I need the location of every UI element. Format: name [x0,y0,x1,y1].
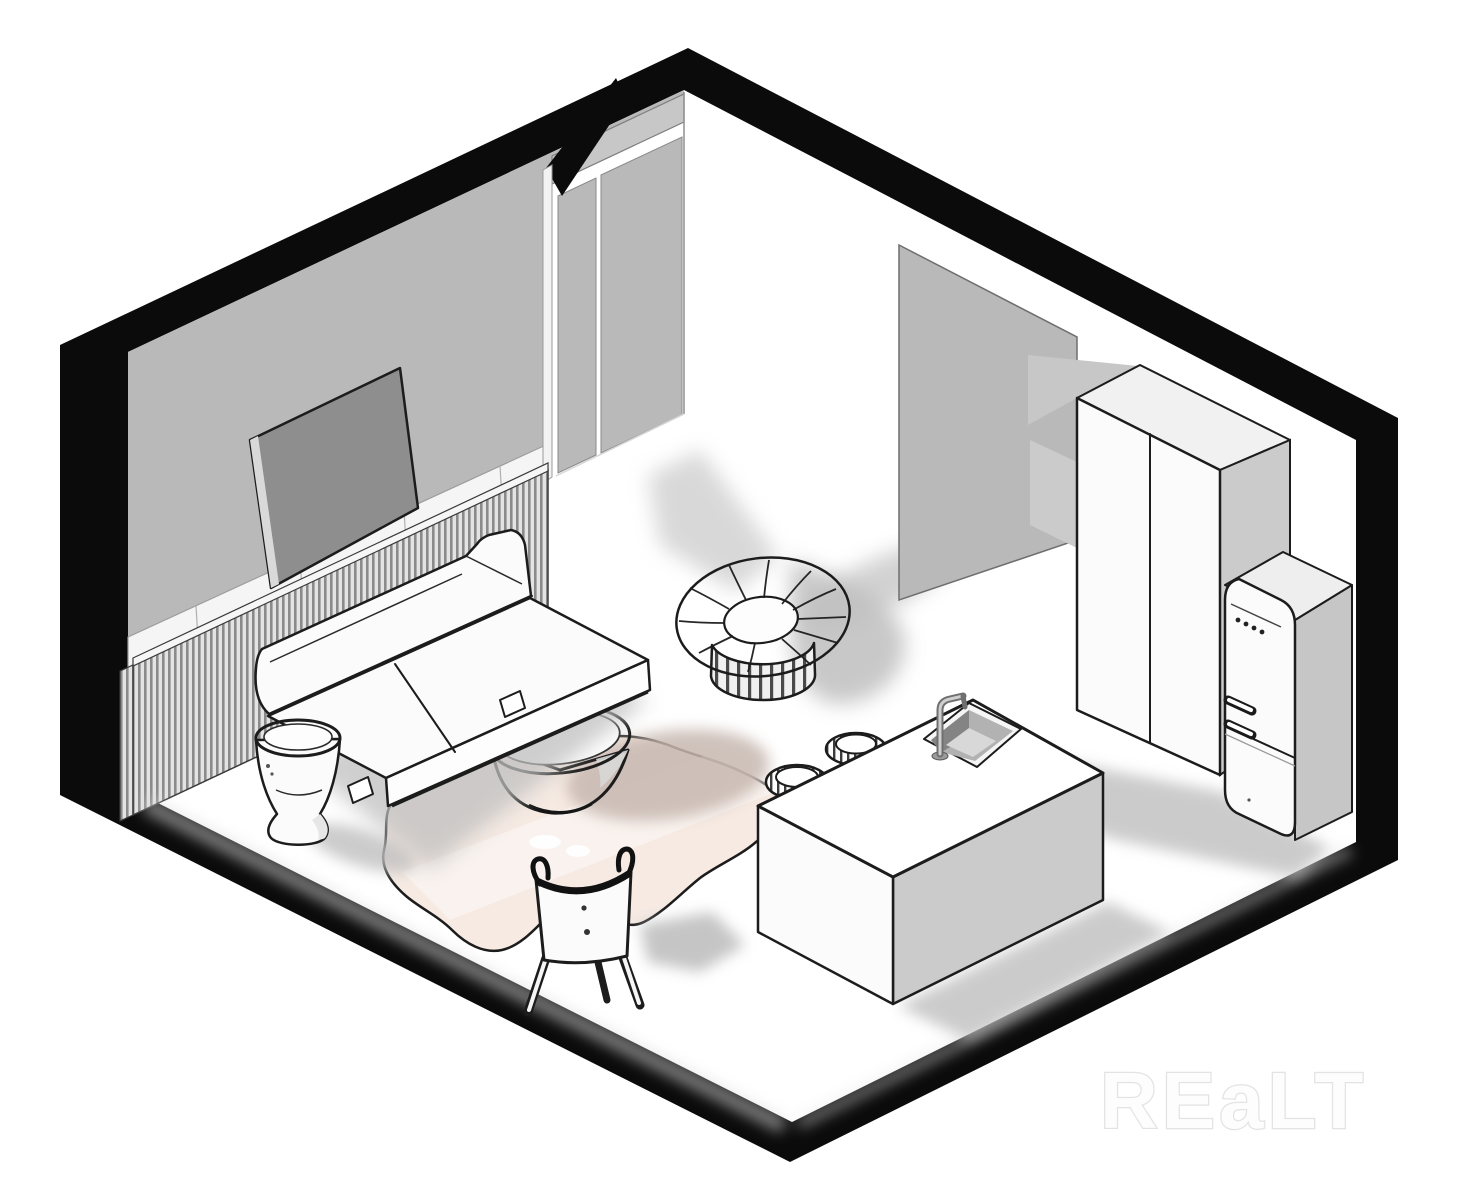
fridge-side [1295,585,1352,840]
partition-face [899,245,1077,600]
isometric-room-plan: Room wall section outline Doorway openin… [0,0,1463,1200]
rug-spot [566,845,590,857]
partition: Partition wall [648,245,1077,646]
fridge: Retro refrigerator [1225,552,1352,840]
hall-wall-panel-right [601,137,682,453]
chair-shadow [640,912,745,972]
radiator-end [120,665,133,821]
watermark-logo: REaLT [1100,1056,1367,1145]
vase-dot [266,764,270,768]
vase-rim-inner [264,724,332,750]
pouf-center [721,593,800,648]
fridge-foot-dot [1247,798,1250,801]
rug-spot [529,835,561,849]
hall-wall-panel-left [558,178,596,473]
chair-dot [584,929,590,935]
vase-dot [270,772,273,775]
chair-dot [581,905,586,910]
door-jamb [543,165,552,483]
